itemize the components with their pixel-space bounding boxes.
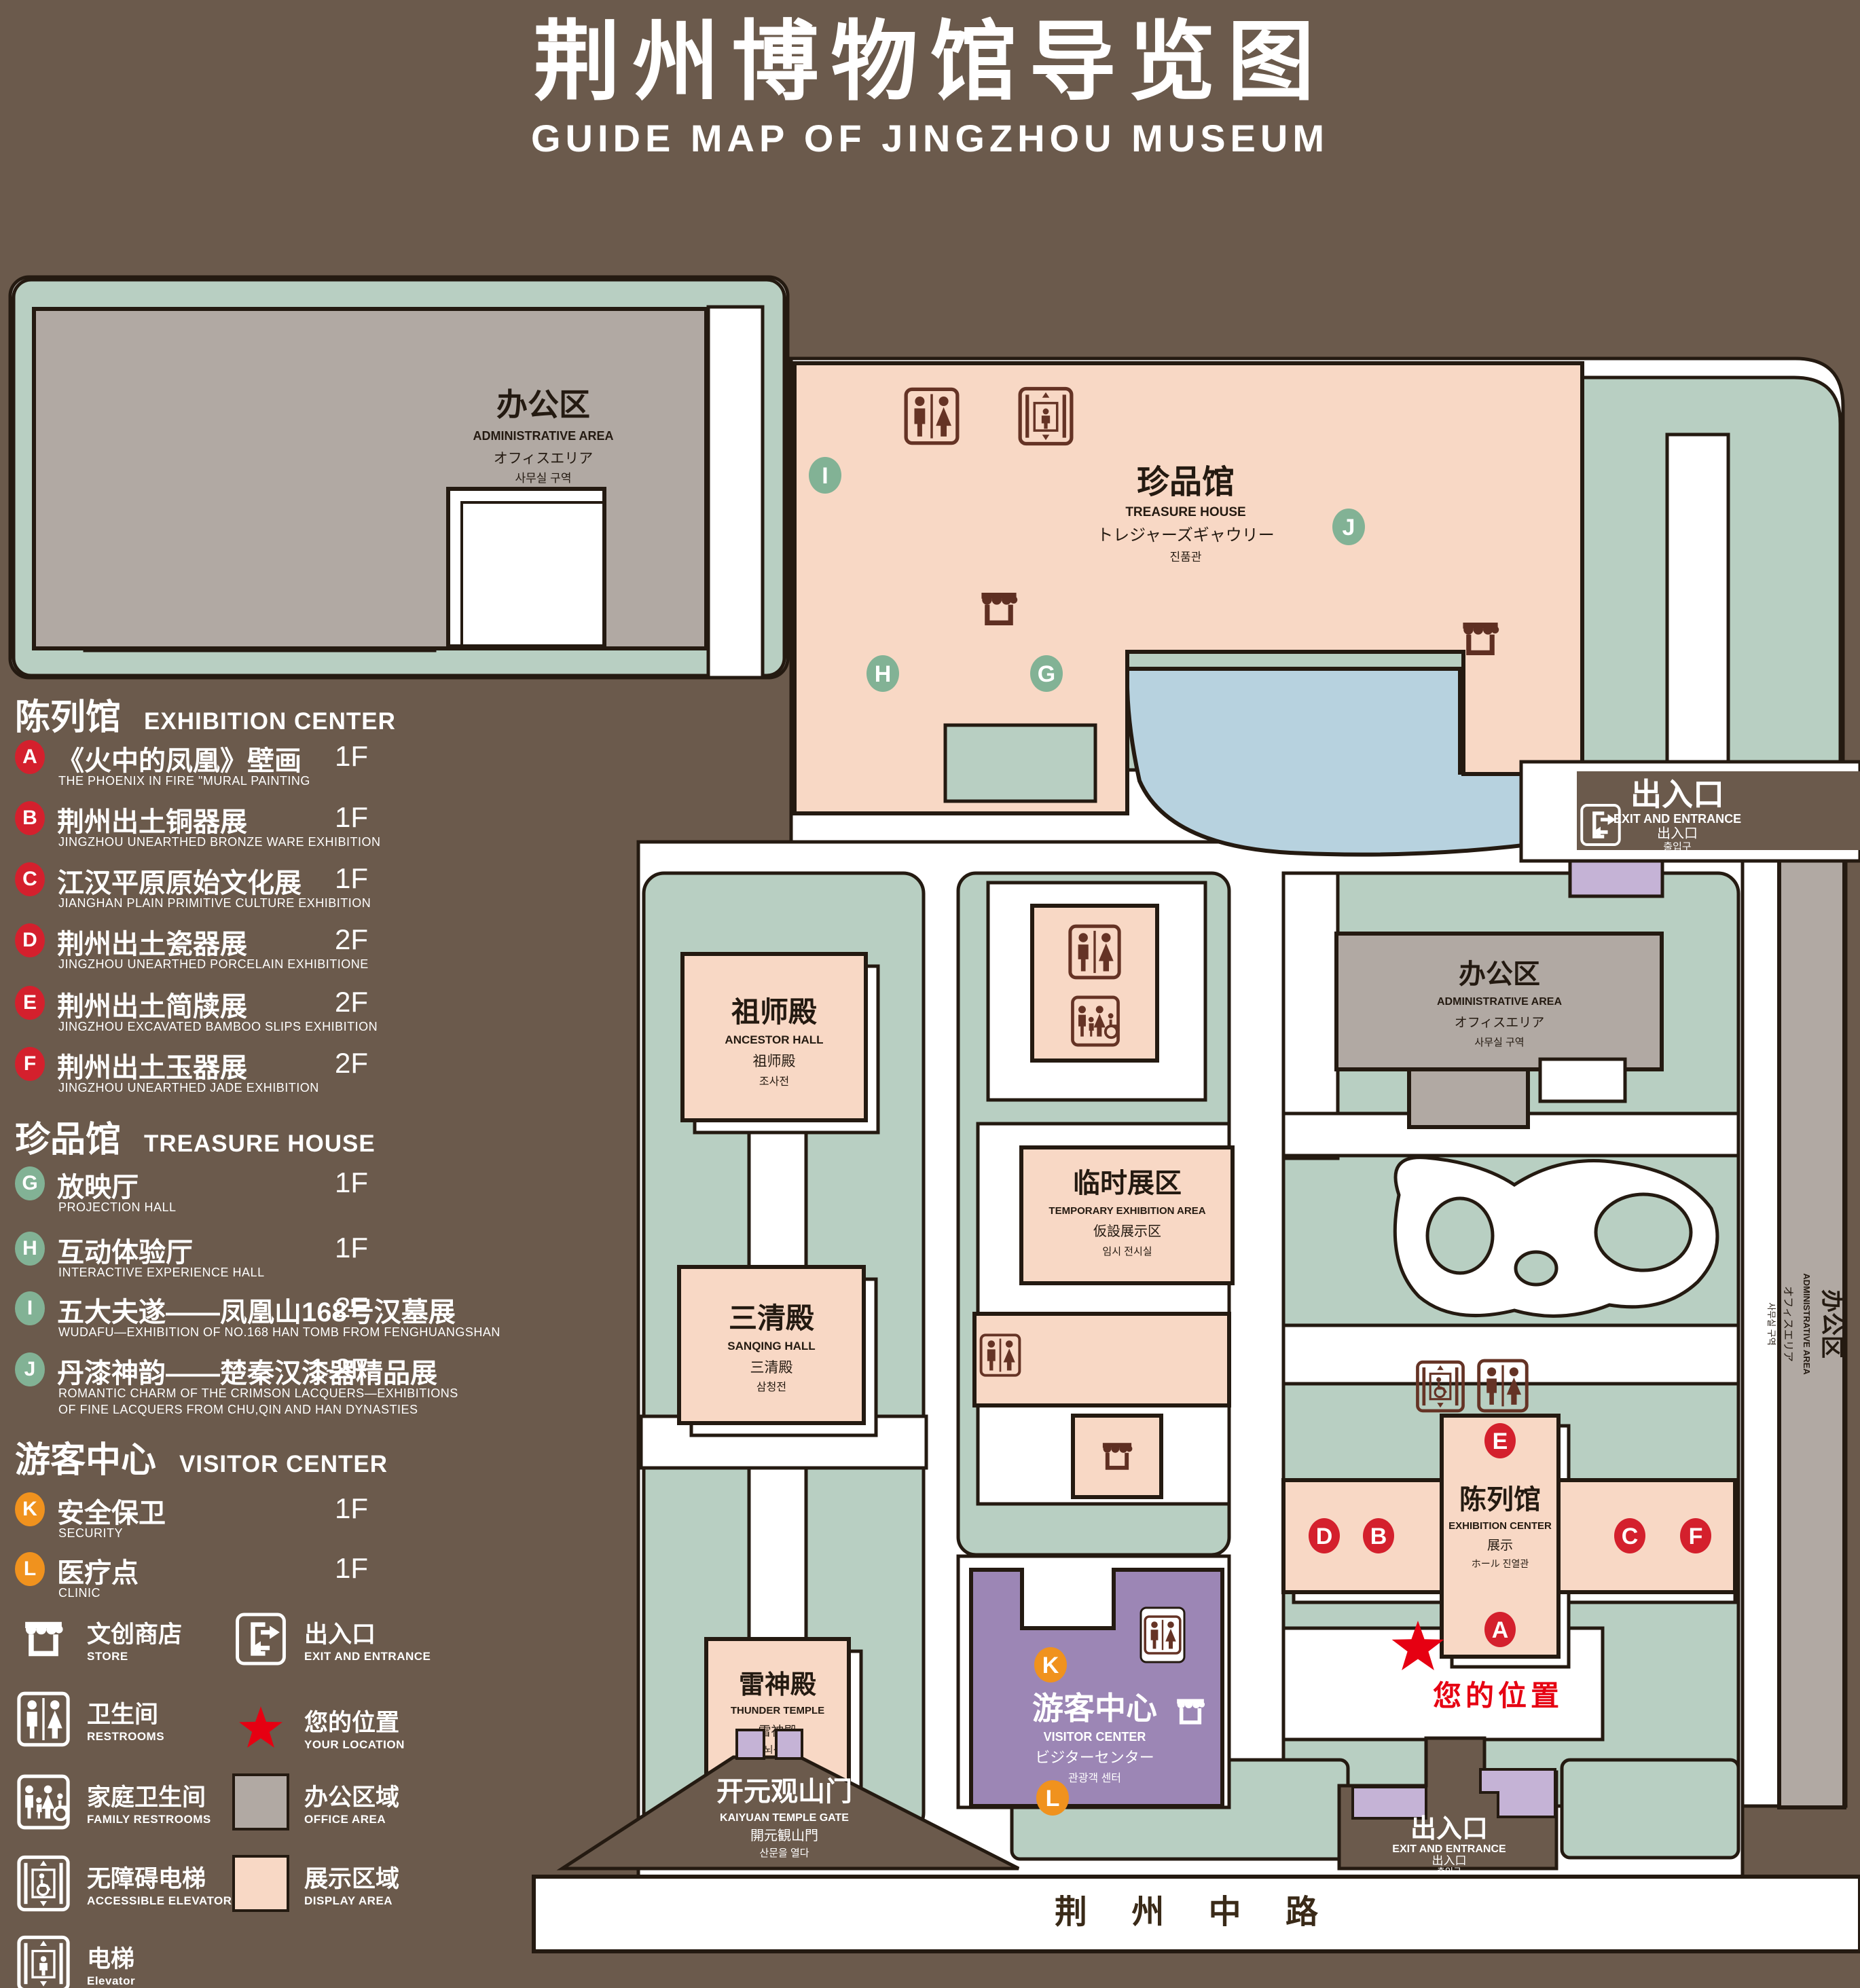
- marker-j: J: [1332, 509, 1365, 545]
- gate-label-kr: 산문을 열다: [759, 1847, 809, 1859]
- building-restrooms: [1032, 906, 1157, 1061]
- thunder-label-en: THUNDER TEMPLE: [731, 1705, 824, 1716]
- sanqing-label-kr: 삼청전: [756, 1381, 786, 1393]
- legend-symbol-display-area: 展示区域DISPLAY AREA: [232, 1855, 399, 1912]
- sanqing-label-jp: 三清殿: [750, 1360, 793, 1376]
- exit-ne-jp: 出入口: [1657, 826, 1698, 841]
- building-lavender-south: [1353, 1787, 1426, 1818]
- legend-symbol-accessible-elevator: 无障碍电梯ACCESSIBLE ELEVATOR: [15, 1855, 232, 1912]
- svg-text:A: A: [1492, 1617, 1509, 1643]
- ancestor-label-en: ANCESTOR HALL: [725, 1033, 823, 1046]
- exhibition-label-jp: 展示: [1487, 1539, 1513, 1553]
- thunder-label-zh: 雷神殿: [739, 1671, 816, 1699]
- badge-h: H: [15, 1232, 45, 1266]
- badge-b: B: [15, 801, 45, 835]
- gate-label-en: KAIYUAN TEMPLE GATE: [720, 1812, 849, 1824]
- badge-k: K: [15, 1492, 45, 1526]
- your-location-icon: [232, 1699, 289, 1756]
- temp-label-jp: 仮設展示区: [1093, 1223, 1161, 1239]
- temp-label-zh: 临时展区: [1073, 1168, 1182, 1198]
- restrooms-icon: [15, 1691, 72, 1748]
- visitor-label-kr: 관광객 센터: [1068, 1772, 1121, 1784]
- treasure-label-jp: トレジャーズギャウリー: [1097, 526, 1275, 545]
- marker-k: K: [1034, 1647, 1067, 1682]
- section-title-zh: 珍品馆: [15, 1111, 121, 1162]
- marker-h: H: [867, 655, 899, 692]
- legend-symbol-exit: 出入口EXIT AND ENTRANCE: [232, 1610, 431, 1668]
- exit-s-en: EXIT AND ENTRANCE: [1392, 1843, 1506, 1855]
- guide-map-poster: 荆州博物馆导览图 GUIDE MAP OF JINGZHOU MUSEUM: [0, 0, 1860, 1988]
- exhibition-label-zh: 陈列馆: [1459, 1485, 1541, 1515]
- treasure-label-zh: 珍品馆: [1137, 464, 1235, 500]
- garden-ponds: [1395, 1158, 1717, 1317]
- marker-e: E: [1484, 1423, 1516, 1458]
- svg-text:C: C: [1622, 1524, 1639, 1549]
- badge-j: J: [15, 1352, 45, 1386]
- admin-c-label-en: ADMINISTRATIVE AREA: [1437, 996, 1562, 1008]
- building-sanqing-hall: 三清殿 SANQING HALL 三清殿 삼청전: [679, 1267, 876, 1435]
- marker-i: I: [809, 457, 841, 494]
- ancestor-label-kr: 조사전: [759, 1075, 789, 1088]
- exit-icon: [232, 1610, 289, 1668]
- marker-d: D: [1309, 1518, 1340, 1553]
- gate-label-zh: 开元观山门: [716, 1777, 852, 1807]
- temp-label-kr: 임시 전시실: [1102, 1246, 1152, 1257]
- svg-text:D: D: [1316, 1524, 1333, 1549]
- svg-text:G: G: [1038, 661, 1055, 687]
- badge-i: I: [15, 1291, 45, 1325]
- sanqing-label-zh: 三清殿: [729, 1302, 814, 1334]
- visitor-label-zh: 游客中心: [1032, 1691, 1157, 1726]
- section-title-en: VISITOR CENTER: [179, 1451, 388, 1478]
- badge-l: L: [15, 1552, 45, 1586]
- exit-northeast: 出入口 EXIT AND ENTRANCE 出入口 출입구: [1521, 762, 1860, 861]
- family-restrooms-icon: [15, 1773, 72, 1830]
- badge-c: C: [15, 862, 45, 896]
- legend-symbol-elevator: 电梯Elevator: [15, 1935, 135, 1988]
- svg-text:H: H: [875, 661, 892, 687]
- legend-section-exhibition-center: 陈列馆 EXHIBITION CENTER: [15, 688, 396, 739]
- legend-symbol-your-location: 您的位置YOUR LOCATION: [232, 1699, 405, 1756]
- legend-section-visitor-center: 游客中心 VISITOR CENTER: [15, 1431, 388, 1482]
- admin-nw-label-en: ADMINISTRATIVE AREA: [473, 429, 614, 443]
- gate-pillar: [776, 1730, 802, 1759]
- section-title-en: TREASURE HOUSE: [144, 1130, 376, 1158]
- legend-symbol-restrooms: 卫生间RESTROOMS: [15, 1691, 164, 1748]
- road-label: 荆 州 中 路: [1055, 1894, 1336, 1930]
- svg-text:B: B: [1370, 1524, 1387, 1549]
- office-area-swatch: [232, 1773, 289, 1830]
- svg-text:F: F: [1689, 1524, 1703, 1549]
- svg-text:L: L: [1046, 1786, 1060, 1811]
- section-title-en: EXHIBITION CENTER: [144, 708, 396, 735]
- admin-e-label-kr: 사무실 구역: [1766, 1302, 1776, 1345]
- exhibition-label-kr: ホール 진열관: [1472, 1558, 1529, 1569]
- treasure-label-kr: 진품관: [1170, 551, 1202, 564]
- building-admin-east: 办公区 ADMINISTRATIVE AREA オフィスエリア 사무실 구역: [1766, 857, 1844, 1807]
- legend-symbol-office-area: 办公区域OFFICE AREA: [232, 1773, 399, 1830]
- building-admin-northwest: 办公区 ADMINISTRATIVE AREA オフィスエリア 사무실 구역: [34, 309, 706, 648]
- lawn-south-east: [1562, 1760, 1738, 1858]
- marker-b: B: [1363, 1518, 1394, 1553]
- admin-c-label-kr: 사무실 구역: [1474, 1037, 1524, 1048]
- marker-c: C: [1614, 1518, 1645, 1553]
- building-temporary-exhibition: 临时展区 TEMPORARY EXHIBITION AREA 仮設展示区 임시 …: [1021, 1147, 1233, 1283]
- marker-l: L: [1036, 1780, 1069, 1816]
- elevator-icon: [1020, 389, 1072, 444]
- ancestor-label-jp: 祖师殿: [753, 1054, 796, 1069]
- ancestor-label-zh: 祖师殿: [731, 996, 817, 1028]
- marker-a: A: [1484, 1612, 1516, 1647]
- legend-sidebar: 陈列馆 EXHIBITION CENTER A 《火中的凤凰》壁画 1F THE…: [15, 679, 450, 1988]
- visitor-label-en: VISITOR CENTER: [1044, 1730, 1146, 1744]
- visitor-label-jp: ビジターセンター: [1035, 1749, 1154, 1766]
- temp-label-en: TEMPORARY EXHIBITION AREA: [1048, 1205, 1205, 1217]
- gate-pillar: [737, 1730, 764, 1759]
- svg-text:E: E: [1493, 1429, 1508, 1454]
- svg-text:J: J: [1343, 515, 1355, 540]
- treasure-label-en: TREASURE HOUSE: [1125, 505, 1245, 519]
- gate-label-jp: 開元観山門: [750, 1828, 818, 1843]
- exit-ne-en: EXIT AND ENTRANCE: [1613, 812, 1741, 826]
- legend-symbol-family-restrooms: 家庭卫生间FAMILY RESTROOMS: [15, 1773, 211, 1830]
- admin-e-label-jp: オフィスエリア: [1782, 1286, 1793, 1362]
- exhibition-label-en: EXHIBITION CENTER: [1448, 1520, 1552, 1532]
- admin-nw-label-zh: 办公区: [496, 387, 590, 422]
- badge-e: E: [15, 986, 45, 1020]
- your-location-label: 您的位置: [1433, 1680, 1563, 1712]
- store-icon: [15, 1610, 72, 1668]
- badge-a: A: [15, 740, 45, 774]
- road-jingzhou-middle: 荆 州 中 路: [534, 1877, 1860, 1951]
- admin-c-label-jp: オフィスエリア: [1455, 1016, 1545, 1030]
- marker-g: G: [1030, 655, 1063, 692]
- svg-text:K: K: [1042, 1653, 1059, 1678]
- badge-d: D: [15, 923, 45, 957]
- marker-f: F: [1680, 1518, 1711, 1553]
- admin-c-label-zh: 办公区: [1459, 959, 1540, 989]
- exit-ne-zh: 出入口: [1630, 777, 1724, 812]
- badge-f: F: [15, 1047, 45, 1081]
- building-ancestor-hall: 祖师殿 ANCESTOR HALL 祖师殿 조사전: [682, 954, 878, 1133]
- admin-e-label-zh: 办公区: [1819, 1289, 1844, 1359]
- section-title-zh: 游客中心: [15, 1431, 156, 1482]
- display-area-swatch: [232, 1855, 289, 1912]
- exit-s-jp: 出入口: [1432, 1854, 1467, 1867]
- legend-symbol-store: 文创商店STORE: [15, 1610, 182, 1668]
- admin-nw-label-jp: オフィスエリア: [494, 451, 594, 466]
- legend-section-treasure-house: 珍品馆 TREASURE HOUSE: [15, 1111, 376, 1162]
- elevator-icon: [15, 1935, 72, 1988]
- admin-nw-label-kr: 사무실 구역: [515, 472, 572, 485]
- exit-ne-kr: 출입구: [1663, 841, 1691, 853]
- accessible-elevator-icon: [15, 1855, 72, 1912]
- section-title-zh: 陈列馆: [15, 688, 121, 739]
- admin-e-label-en: ADMINISTRATIVE AREA: [1802, 1273, 1812, 1375]
- svg-text:I: I: [822, 463, 828, 489]
- badge-g: G: [15, 1166, 45, 1200]
- sanqing-label-en: SANQING HALL: [727, 1340, 815, 1352]
- exit-s-zh: 出入口: [1410, 1815, 1488, 1843]
